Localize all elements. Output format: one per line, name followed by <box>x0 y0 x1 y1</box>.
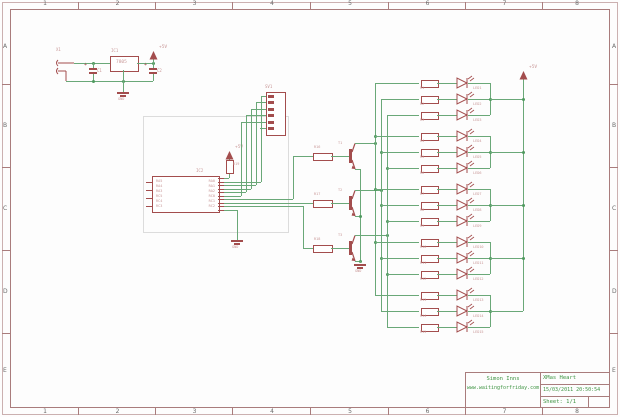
led-ref: LED4 <box>473 140 481 144</box>
titleblock-website: www.waitingforfriday.com <box>466 386 540 391</box>
wire <box>387 327 419 328</box>
resistor-ref: R5 <box>420 156 424 160</box>
wire <box>375 136 419 137</box>
wire <box>437 205 457 206</box>
capacitor-ref: C1 <box>97 69 102 73</box>
frame-row-label: B <box>612 123 616 129</box>
ic-pin <box>146 182 152 183</box>
regulator-value: 7805 <box>116 61 127 66</box>
titleblock-sheet: Sheet: 1/1 <box>543 400 576 406</box>
wire <box>437 136 457 137</box>
frame-col-label: 8 <box>573 1 581 7</box>
wire <box>303 206 304 248</box>
led-ref: LED8 <box>473 209 481 213</box>
titleblock-project: XMas Heart <box>543 376 576 382</box>
resistor-ref: R12 <box>420 278 426 282</box>
polarity-mark: + <box>144 63 147 68</box>
wire <box>224 199 293 200</box>
resistor-ref: R6 <box>420 172 424 176</box>
led-ref: LED6 <box>473 172 481 176</box>
junction-dot <box>92 80 95 83</box>
wire <box>298 203 313 204</box>
wire <box>387 168 419 169</box>
led-ref: LED14 <box>473 315 484 319</box>
wire <box>381 311 419 312</box>
frame-tick <box>610 250 618 251</box>
frame-tick <box>2 167 10 168</box>
resistor-ref: R11 <box>420 262 426 266</box>
frame-row-label: A <box>612 44 616 50</box>
base-resistor-ref: R16 <box>314 146 320 150</box>
frame-outer-right <box>617 2 618 415</box>
led-ref: LED10 <box>473 246 484 250</box>
transistor-ref: T1 <box>338 142 342 146</box>
wire <box>437 258 457 259</box>
wire <box>437 327 457 328</box>
vcc-label: +5V <box>529 66 537 71</box>
connector-pad <box>268 108 274 111</box>
led-ref: LED9 <box>473 225 481 229</box>
frame-tick <box>232 2 233 9</box>
frame-col-label: 2 <box>114 1 122 7</box>
wire <box>468 189 490 190</box>
frame-inner-left <box>10 9 11 408</box>
frame-tick <box>610 84 618 85</box>
base-resistor <box>313 153 333 161</box>
resistor-ref: R7 <box>420 193 424 197</box>
wire <box>437 274 457 275</box>
pin-name: RC1 <box>209 200 215 204</box>
wire <box>437 189 457 190</box>
pullup-ref: R19 <box>233 163 239 167</box>
resistor-ref: R14 <box>420 315 426 319</box>
base-resistor-ref: R17 <box>314 193 320 197</box>
ic-pin <box>146 206 152 207</box>
frame-col-label: 2 <box>114 409 122 415</box>
wire <box>468 274 490 275</box>
wire <box>468 221 490 222</box>
frame-col-label: 8 <box>573 409 581 415</box>
frame-tick <box>2 333 10 334</box>
frame-row-label: E <box>3 368 7 374</box>
frame-col-label: 6 <box>424 409 432 415</box>
wire <box>261 96 266 97</box>
titleblock-sheet-divider <box>588 396 589 408</box>
wire <box>468 205 490 206</box>
capacitor-ref: C2 <box>157 69 162 73</box>
wire <box>241 122 266 123</box>
pin-name: RC5 <box>156 195 162 199</box>
wire <box>251 109 252 189</box>
frame-tick <box>610 167 618 168</box>
resistor-ref: R1 <box>420 87 424 91</box>
wire <box>375 295 419 296</box>
connector-pad <box>268 95 274 98</box>
pin-name: RC0 <box>209 195 215 199</box>
junction-dot <box>522 257 525 260</box>
frame-tick <box>2 84 10 85</box>
frame-row-label: E <box>612 368 616 374</box>
wire <box>303 248 313 249</box>
wire <box>224 206 303 207</box>
wire <box>246 115 266 116</box>
wire <box>224 192 246 193</box>
frame-tick <box>78 2 79 9</box>
led-ref: LED7 <box>473 193 481 197</box>
capacitor <box>89 68 97 70</box>
junction-dot <box>522 151 525 154</box>
wire <box>123 70 124 81</box>
resistor-ref: R13 <box>420 299 426 303</box>
titleblock-divider <box>540 372 541 408</box>
wire <box>468 99 490 100</box>
titleblock-top-line <box>465 372 610 373</box>
wire <box>123 81 124 92</box>
wire <box>387 221 419 222</box>
resistor-ref: R9 <box>420 225 424 229</box>
wire <box>153 74 154 81</box>
wire <box>224 210 237 211</box>
wire <box>251 109 266 110</box>
frame-tick <box>78 408 79 415</box>
gnd-symbol-icon <box>117 92 129 94</box>
frame-row-label: B <box>3 123 7 129</box>
ic-pin <box>146 190 152 191</box>
frame-col-label: 4 <box>268 1 276 7</box>
led-ref: LED15 <box>473 331 484 335</box>
transistor-ref: T2 <box>338 189 342 193</box>
titleblock-author: Simon Inns <box>466 377 540 383</box>
wire <box>468 258 490 259</box>
frame-tick <box>155 408 156 415</box>
wire <box>293 156 313 157</box>
resistor-ref: R8 <box>420 209 424 213</box>
wire <box>437 295 457 296</box>
resistor-ref: R10 <box>420 246 426 250</box>
resistor-ref: R15 <box>420 331 426 335</box>
led-ref: LED11 <box>473 262 484 266</box>
pin-name: RA2 <box>209 190 215 194</box>
junction-dot <box>522 98 525 101</box>
connector-pad <box>268 101 274 104</box>
resistor-ref: R2 <box>420 103 424 107</box>
frame-row-label: D <box>612 289 617 295</box>
titleblock-row-line1 <box>540 384 610 385</box>
frame-col-label: 6 <box>424 1 432 7</box>
frame-col-label: 7 <box>501 1 509 7</box>
frame-tick <box>2 250 10 251</box>
wire <box>375 189 419 190</box>
frame-inner-right <box>609 9 610 408</box>
frame-row-label: D <box>3 289 8 295</box>
wire <box>490 311 523 312</box>
led-ref: LED12 <box>473 278 484 282</box>
schematic-canvas: Simon Inns www.waitingforfriday.com XMas… <box>0 0 620 417</box>
gnd-label: GND <box>355 270 361 274</box>
transistor-ref: T3 <box>338 234 342 238</box>
frame-tick <box>310 2 311 9</box>
wire <box>437 242 457 243</box>
jack-ref: X1 <box>56 48 61 52</box>
frame-row-label: C <box>3 206 7 212</box>
frame-tick <box>542 408 543 415</box>
wire <box>437 311 457 312</box>
titleblock-row-line2 <box>540 396 610 397</box>
pin-name: RA1 <box>209 185 215 189</box>
wire <box>237 210 238 240</box>
led-ref: LED2 <box>473 103 481 107</box>
wire <box>387 274 419 275</box>
wire <box>490 258 523 259</box>
led-ref: LED3 <box>473 119 481 123</box>
frame-row-label: C <box>612 206 616 212</box>
frame-tick <box>610 333 618 334</box>
resistor-ref: R4 <box>420 140 424 144</box>
wire <box>437 221 457 222</box>
gnd-label: GND <box>118 98 124 102</box>
wire <box>468 83 490 84</box>
frame-tick <box>310 408 311 415</box>
frame-col-label: 5 <box>346 409 354 415</box>
connector-ref: SV1 <box>265 85 272 89</box>
junction-dot <box>359 215 362 218</box>
base-resistor <box>313 200 333 208</box>
pin-name: RC4 <box>156 200 162 204</box>
transistor-T1 <box>344 140 364 174</box>
wire <box>468 327 490 328</box>
connector-pad <box>268 127 274 130</box>
connector-pad <box>268 121 274 124</box>
capacitor <box>149 68 157 70</box>
wire <box>437 152 457 153</box>
wire <box>224 203 298 204</box>
wire <box>381 152 419 153</box>
frame-tick <box>388 408 389 415</box>
frame-col-label: 5 <box>346 1 354 7</box>
frame-tick <box>388 2 389 9</box>
wire <box>468 295 490 296</box>
frame-col-label: 3 <box>191 1 199 7</box>
frame-col-label: 7 <box>501 409 509 415</box>
wire <box>241 122 242 196</box>
wire <box>224 196 241 197</box>
base-resistor-ref: R18 <box>314 238 320 242</box>
wire <box>293 156 294 199</box>
wire <box>437 99 457 100</box>
pin-name: RA0 <box>209 180 215 184</box>
led-ref: LED13 <box>473 299 484 303</box>
wire <box>375 242 419 243</box>
wire <box>468 152 490 153</box>
frame-col-label: 4 <box>268 409 276 415</box>
frame-col-label: 1 <box>41 409 49 415</box>
pin-name: RC3 <box>156 205 162 209</box>
frame-row-label: A <box>3 44 7 50</box>
wire <box>437 168 457 169</box>
wire <box>490 152 523 153</box>
frame-col-label: 3 <box>191 409 199 415</box>
frame-inner-top <box>10 9 610 10</box>
wire <box>468 168 490 169</box>
led-ref: LED5 <box>473 156 481 160</box>
wire <box>260 128 266 129</box>
vcc-arrow-icon <box>225 145 234 154</box>
pin-name: RC2 <box>209 205 215 209</box>
resistor-ref: R3 <box>420 119 424 123</box>
wire <box>355 143 375 144</box>
ic-pin <box>146 198 152 199</box>
frame-tick <box>542 2 543 9</box>
wire <box>523 76 524 311</box>
mcu-ref: IC2 <box>196 169 203 173</box>
wire <box>490 99 523 100</box>
wire <box>468 242 490 243</box>
pin-name: RA3 <box>156 190 162 194</box>
frame-col-label: 1 <box>41 1 49 7</box>
wire <box>468 136 490 137</box>
polarity-mark: + <box>84 63 87 68</box>
frame-tick <box>465 2 466 9</box>
wire <box>66 81 153 82</box>
wire <box>375 83 419 84</box>
vcc-label: +5V <box>159 46 167 51</box>
wire <box>468 311 490 312</box>
wire <box>387 115 419 116</box>
vcc-arrow-icon <box>519 65 528 74</box>
vcc-arrow-icon <box>149 45 158 54</box>
frame-tick <box>232 408 233 415</box>
wire <box>381 258 419 259</box>
wire <box>256 102 266 103</box>
wire <box>437 115 457 116</box>
regulator-ref: IC1 <box>111 49 118 53</box>
wire <box>355 190 381 191</box>
led-ref: LED1 <box>473 87 481 91</box>
gnd-symbol-icon <box>354 264 366 266</box>
gnd-label: GND <box>232 246 238 250</box>
wire <box>490 205 523 206</box>
connector-pad <box>268 114 274 117</box>
wire <box>437 83 457 84</box>
pin-name: RA4 <box>156 185 162 189</box>
wire <box>381 99 419 100</box>
wire <box>468 115 490 116</box>
wire <box>246 115 247 192</box>
frame-tick <box>465 408 466 415</box>
power-jack <box>56 55 76 83</box>
titleblock-datetime: 15/03/2011 20:50:54 <box>543 388 600 393</box>
wire <box>381 205 419 206</box>
pin-name: RA5 <box>156 180 162 184</box>
wire <box>224 178 229 179</box>
gnd-symbol-icon <box>231 240 243 242</box>
wire <box>360 261 361 263</box>
junction-dot <box>522 204 525 207</box>
base-resistor <box>313 245 333 253</box>
frame-tick <box>155 2 156 9</box>
